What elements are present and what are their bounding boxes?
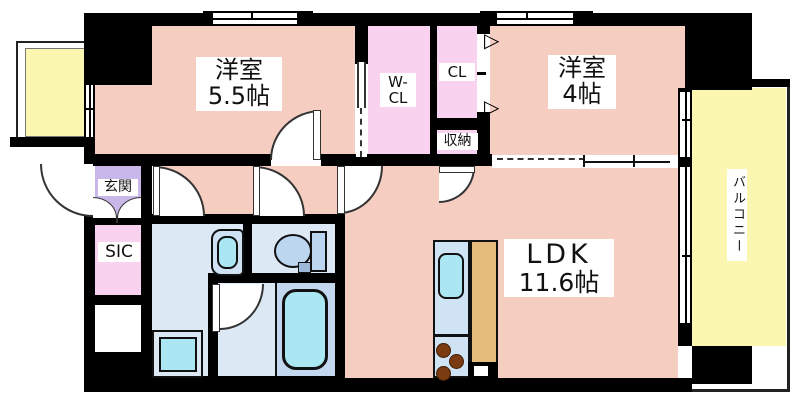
wall-washroom-toilet [243, 224, 252, 273]
window-top1-tick [251, 13, 253, 19]
wall-balcony-top [752, 79, 790, 87]
kitchen-worktop [470, 240, 498, 378]
wall-wcl-left [355, 26, 368, 64]
balcony-outer-border-right [787, 79, 790, 392]
balcony-outer-border-bottom [692, 389, 790, 392]
wall-top [85, 13, 690, 26]
room55-door-leaf[interactable] [313, 110, 321, 160]
window-top2-cap-left [480, 11, 497, 26]
kitchen-counter-divider [433, 334, 470, 337]
wcl-line1: W- [382, 74, 414, 90]
window-room55-top [213, 11, 297, 26]
entrance-door-arc[interactable] [40, 164, 93, 217]
window-top2-tick [526, 13, 528, 19]
sliding-door-room4-ldk[interactable] [492, 155, 678, 168]
wall-cl-storage [433, 118, 477, 130]
bifold-door-icon: ▷ [484, 97, 499, 117]
room-western-4-label: 洋室 4帖 [548, 55, 616, 109]
bifold-door-icon: ▷ [484, 30, 499, 50]
window-right2-tick [682, 255, 692, 257]
window-room4-top [497, 11, 573, 26]
balcony-label: バルコニー [727, 169, 747, 261]
kitchen-end-pillar-inner [474, 366, 488, 376]
room-size: 11.6帖 [506, 269, 612, 296]
entrance-door-tick [116, 216, 118, 223]
wcl-line2: CL [382, 90, 414, 106]
toilet-tank [310, 231, 327, 272]
wall-cl-right-bottom [477, 112, 490, 166]
kitchen-sink [438, 253, 464, 299]
washroom-door-leaf[interactable] [153, 166, 160, 216]
washer-space-inner [159, 337, 197, 372]
wall-sic-bottom [90, 295, 143, 305]
window-room55-left [84, 85, 95, 137]
shoe-in-closet-label: SIC [98, 242, 140, 262]
wall-stub-left [10, 137, 84, 147]
side-alcove [25, 48, 85, 137]
storage-label: 収納 [437, 133, 478, 150]
bathtub [282, 289, 328, 370]
vanity-sink-basin [217, 236, 238, 269]
bathroom-door-leaf[interactable] [212, 284, 220, 332]
toilet-handle [298, 262, 311, 273]
stove-burner-1 [436, 343, 451, 358]
room-name: LDK [506, 240, 612, 269]
window-top2-cap-right [573, 11, 593, 26]
wcl-door-leaf[interactable] [337, 166, 345, 214]
wall-balcony-bottom-block [692, 346, 752, 384]
wcl-opening-lower [356, 108, 367, 157]
wall-wcl-cl [430, 26, 437, 156]
room-size: 4帖 [550, 82, 614, 108]
closet-label: CL [439, 63, 475, 81]
ldk-label: LDK 11.6帖 [504, 239, 614, 297]
toilet-door-leaf[interactable] [253, 166, 260, 216]
stove-burner-3 [436, 366, 451, 381]
service-space [93, 305, 141, 352]
wall-block-top-left [84, 13, 152, 85]
wall-block-top-right [685, 13, 752, 90]
ldk-door-leaf[interactable] [439, 166, 475, 173]
entrance-label: 玄関 [98, 179, 138, 196]
walk-in-closet-label: W- CL [380, 73, 416, 107]
room-size: 5.5帖 [198, 84, 280, 110]
window-left-tick [85, 108, 94, 110]
room-name: 洋室 [198, 58, 280, 84]
window-ldk-right [678, 167, 692, 323]
room-western-5-5-label: 洋室 5.5帖 [196, 57, 282, 111]
window-top1-cap-left [203, 11, 213, 26]
room-name: 洋室 [550, 56, 614, 82]
floor-plan: ▷ ▷ 洋室 5.5帖 洋室 4帖 LDK 11.6帖 W- CL CL 収納 … [0, 0, 800, 405]
window-room4-right [678, 92, 692, 157]
wall-bottom [84, 378, 692, 392]
window-top1-cap-right [297, 11, 313, 26]
window-right1-tick [682, 119, 692, 121]
closet-opening-tick [477, 72, 486, 75]
stove-burner-2 [449, 354, 464, 369]
wcl-opening-upper [357, 62, 366, 108]
